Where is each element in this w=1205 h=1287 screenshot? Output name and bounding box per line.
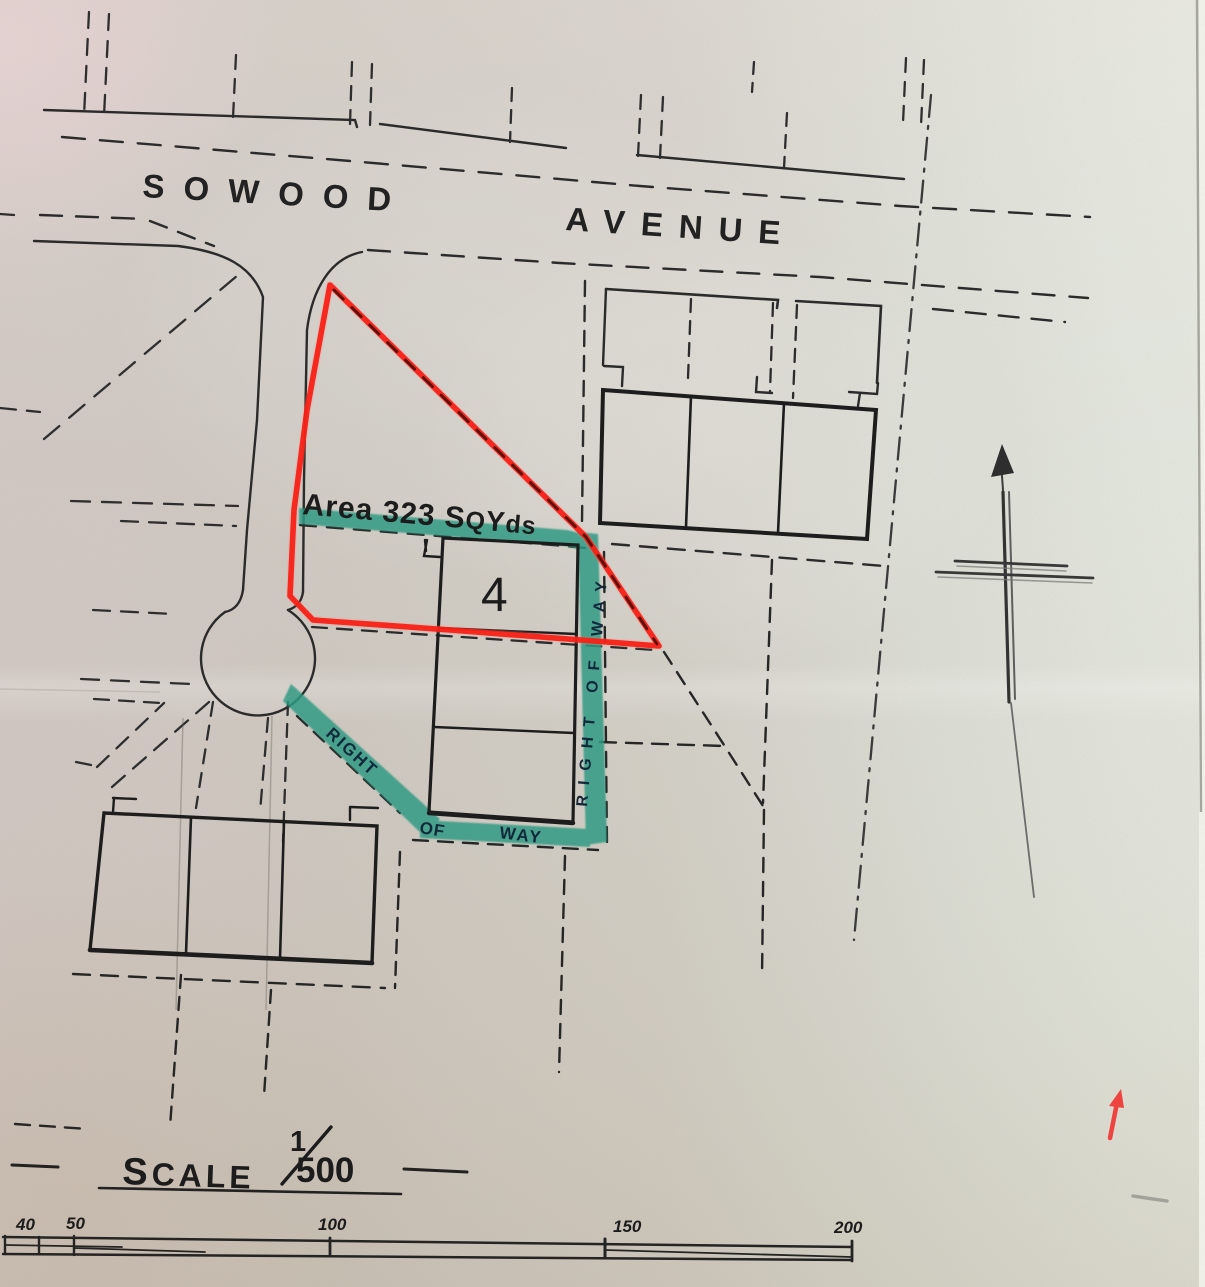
svg-text:4: 4	[481, 569, 508, 622]
svg-text:50: 50	[66, 1214, 85, 1233]
svg-text:500: 500	[296, 1151, 354, 1190]
svg-text:OF: OF	[418, 818, 446, 841]
svg-text:200: 200	[833, 1218, 863, 1237]
svg-text:100: 100	[318, 1215, 347, 1234]
svg-text:150: 150	[613, 1217, 642, 1236]
svg-text:40: 40	[15, 1215, 35, 1234]
